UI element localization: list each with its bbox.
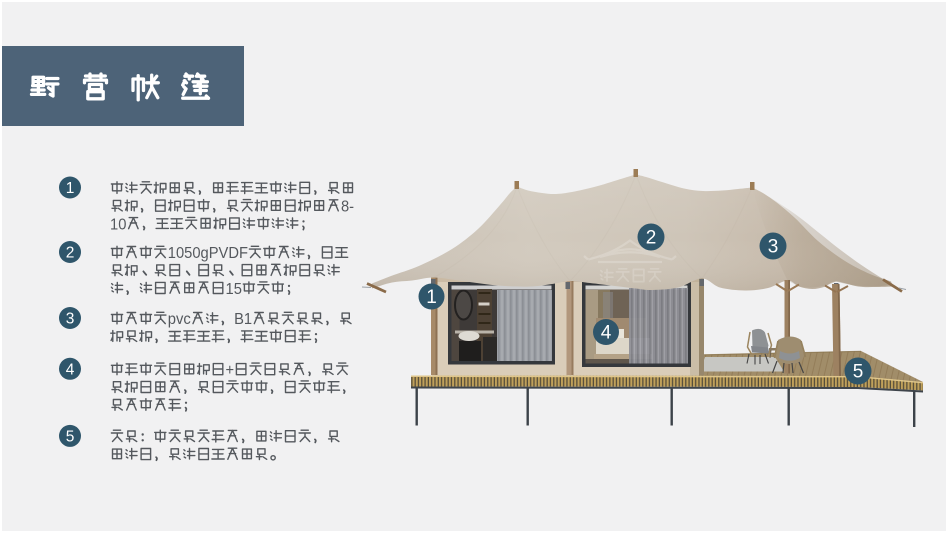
svg-text:B1: B1	[234, 311, 252, 328]
svg-text:1: 1	[66, 180, 75, 197]
svg-text:pvc: pvc	[168, 311, 191, 328]
svg-text:4: 4	[601, 323, 612, 344]
svg-text:15: 15	[226, 281, 242, 298]
svg-text:3: 3	[66, 311, 75, 328]
svg-text:1: 1	[426, 287, 437, 308]
svg-text:10: 10	[110, 216, 127, 233]
svg-text:3: 3	[768, 237, 779, 258]
svg-text:1050gPVDF: 1050gPVDF	[168, 245, 248, 262]
svg-text:2: 2	[66, 245, 75, 262]
svg-text:8-: 8-	[341, 199, 354, 216]
svg-text:+: +	[226, 362, 235, 379]
svg-text:5: 5	[66, 428, 75, 445]
svg-text:5: 5	[853, 362, 864, 383]
svg-text:2: 2	[646, 228, 657, 249]
svg-text:4: 4	[66, 361, 75, 378]
